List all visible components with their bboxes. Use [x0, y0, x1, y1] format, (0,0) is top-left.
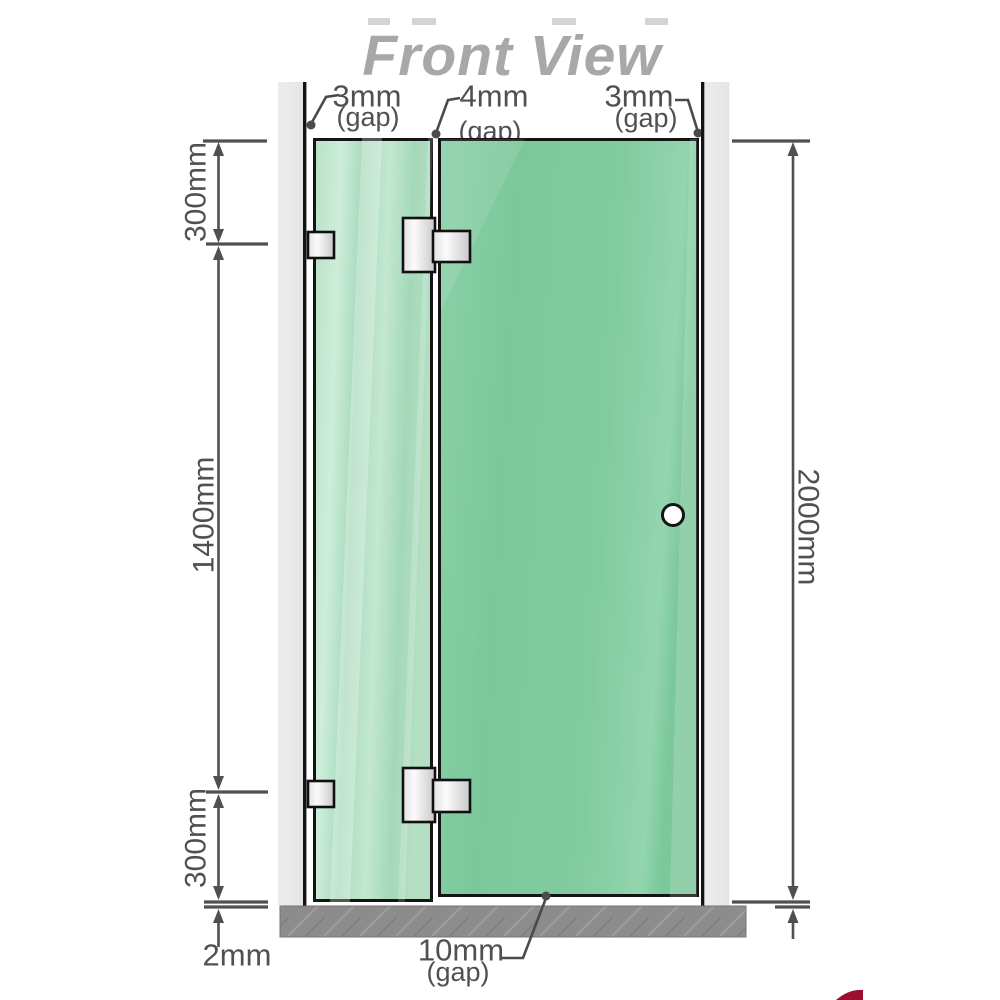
left-dimension-column: 300mm 1400mm 300mm 2mm — [180, 141, 272, 973]
right-dimension-column: 2000mm — [732, 141, 825, 939]
door-panel-glass — [440, 139, 698, 897]
dim-seg-bottom-label: 300mm — [180, 788, 213, 888]
logo-mark-cropped — [836, 990, 863, 1000]
right-wall — [701, 82, 729, 906]
dim-seg-top-label: 300mm — [180, 142, 213, 242]
dim-seg-mid-label: 1400mm — [188, 457, 221, 574]
gap-left-suffix: (gap) — [336, 102, 399, 132]
door-knob — [663, 505, 684, 526]
front-view-diagram: Front View 3mm (gap) 4mm (gap) 3mm (gap) — [0, 0, 1000, 1000]
left-wall — [278, 82, 306, 906]
diagram-canvas: Front View 3mm (gap) 4mm (gap) 3mm (gap) — [0, 0, 1000, 1000]
gap-left-dot — [307, 121, 316, 130]
gap-annotations-top: 3mm (gap) 4mm (gap) 3mm (gap) — [307, 79, 703, 147]
gap-middle-leader — [436, 98, 460, 133]
floor-base — [280, 906, 746, 937]
gap-bottom-dot — [542, 892, 551, 901]
right-wall-edge — [701, 82, 704, 906]
gap-middle-dot — [432, 130, 441, 139]
gap-bottom-suffix: (gap) — [426, 957, 489, 987]
gap-right-suffix: (gap) — [614, 103, 677, 133]
gap-middle-value: 4mm — [460, 79, 529, 114]
gap-right-leader — [675, 100, 698, 132]
dim-total-height-label: 2000mm — [792, 469, 825, 586]
dim-floor-clearance-label: 2mm — [203, 938, 272, 973]
left-wall-edge — [303, 82, 306, 906]
wall-bracket-top — [308, 232, 334, 258]
wall-bracket-bottom — [308, 781, 334, 807]
